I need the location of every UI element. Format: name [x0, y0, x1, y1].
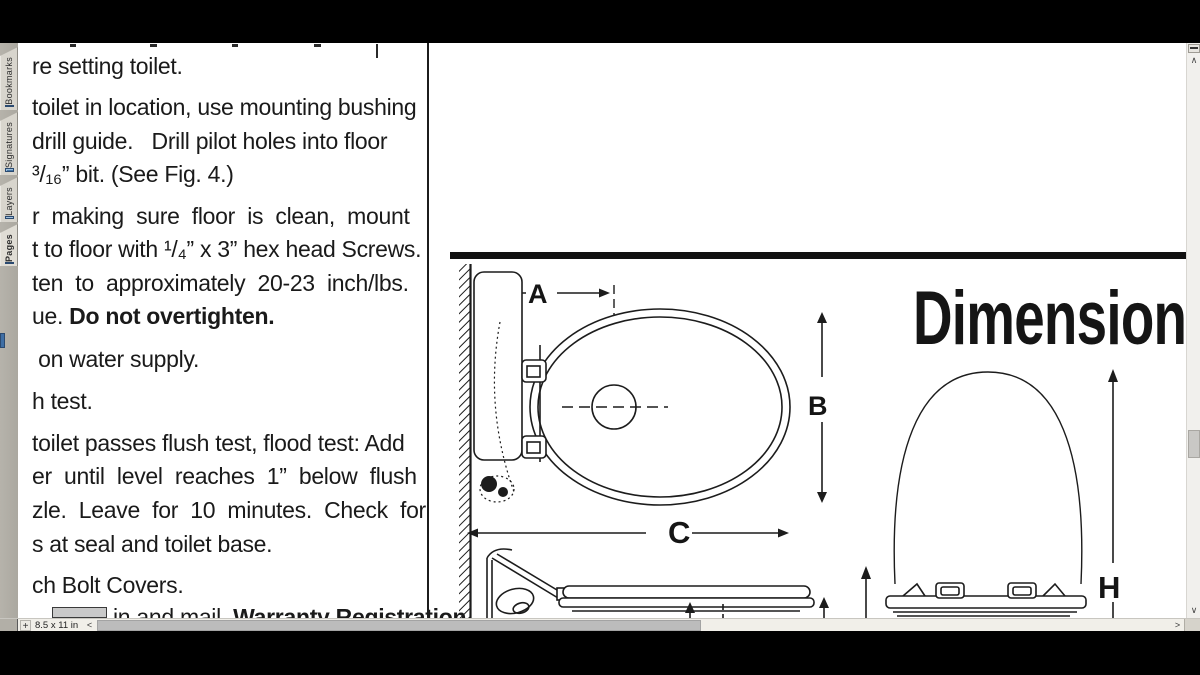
- vertical-scrollbar[interactable]: ∧ ∨: [1186, 43, 1200, 618]
- doc-text-line: ten to approximately 20-23 inch/lbs.: [32, 270, 409, 297]
- v-scroll-up-icon[interactable]: ∧: [1187, 54, 1200, 67]
- toilet-side-view: [487, 549, 829, 618]
- doc-text-line: zle. Leave for 10 minutes. Check for: [32, 497, 426, 524]
- doc-text-line: ³/₁₆” bit. (See Fig. 4.): [32, 161, 234, 188]
- doc-text-line: s at seal and toilet base.: [32, 531, 272, 558]
- doc-text-line: ch Bolt Covers.: [32, 572, 183, 599]
- navigation-pane-strip: Bookmarks Signatures Layers Pages: [0, 43, 18, 618]
- tab-pages-label: Pages: [4, 234, 14, 262]
- section-top-rule: [450, 252, 1186, 259]
- screenshot-root: Bookmarks Signatures Layers Pages re set…: [0, 0, 1200, 675]
- doc-text-line: toilet in location, use mounting bushing: [32, 94, 416, 121]
- dimension-arrow-b: [817, 312, 827, 503]
- h-scroll-thumb[interactable]: [97, 620, 701, 631]
- text-remnant: [70, 44, 76, 47]
- tab-layers[interactable]: Layers: [0, 177, 18, 222]
- tab-pages[interactable]: Pages: [0, 224, 18, 266]
- pane-splitter-handle[interactable]: [0, 333, 5, 348]
- tab-bookmarks[interactable]: Bookmarks: [0, 47, 18, 110]
- tab-signatures-label: Signatures: [4, 122, 14, 168]
- doc-text-line: re setting toilet.: [32, 53, 183, 80]
- plus-icon[interactable]: +: [20, 620, 31, 631]
- tab-layers-label: Layers: [4, 187, 14, 216]
- letterbox-bottom: [0, 631, 1200, 675]
- signatures-icon: [5, 168, 14, 172]
- bookmarks-icon: [5, 105, 14, 107]
- pages-icon: [5, 262, 14, 264]
- doc-text-line: h test.: [32, 388, 93, 415]
- text-remnant: [150, 44, 157, 47]
- text-remnant: [314, 44, 321, 47]
- doc-text-line: ue. Do not overtighten.: [32, 303, 274, 330]
- v-scroll-down-icon[interactable]: ∨: [1187, 604, 1200, 617]
- letterbox-top: [0, 0, 1200, 43]
- doc-text-line: drill guide. Drill pilot holes into floo…: [32, 128, 387, 155]
- text-remnant: [232, 44, 238, 47]
- layers-icon: [5, 216, 14, 219]
- toilet-dimensions-diagram: [428, 43, 1186, 618]
- h-scroll-right-icon[interactable]: >: [1172, 620, 1183, 631]
- dimension-arrow-c: [467, 529, 789, 538]
- doc-text-line: on water supply.: [32, 346, 199, 373]
- split-view-handle[interactable]: [1188, 44, 1200, 53]
- doc-text-line: in and mail Warranty Registration: [113, 604, 466, 618]
- tab-bookmarks-label: Bookmarks: [4, 57, 14, 105]
- doc-text-line: toilet passes flush test, flood test: Ad…: [32, 430, 405, 457]
- tab-signatures[interactable]: Signatures: [0, 112, 18, 175]
- v-scroll-thumb[interactable]: [1188, 430, 1200, 458]
- dimension-arrow-h: [1108, 369, 1118, 618]
- toilet-front-view: [861, 372, 1086, 618]
- doc-text-line: er until level reaches 1” below flush: [32, 463, 417, 490]
- document-page: re setting toilet. toilet in location, u…: [18, 43, 1186, 618]
- text-remnant: [376, 44, 378, 58]
- page-size-label: 8.5 x 11 in: [35, 620, 78, 631]
- toilet-top-view: [474, 272, 790, 505]
- inline-figure-remnant: [52, 607, 107, 618]
- status-bar: + 8.5 x 11 in < >: [0, 618, 1200, 631]
- doc-text-line: t to floor with ¹/₄” x 3” hex head Screw…: [32, 236, 421, 263]
- doc-text-line: r making sure floor is clean, mount: [32, 203, 410, 230]
- h-scroll-left-icon[interactable]: <: [84, 620, 95, 631]
- wall-hatching: [459, 264, 471, 618]
